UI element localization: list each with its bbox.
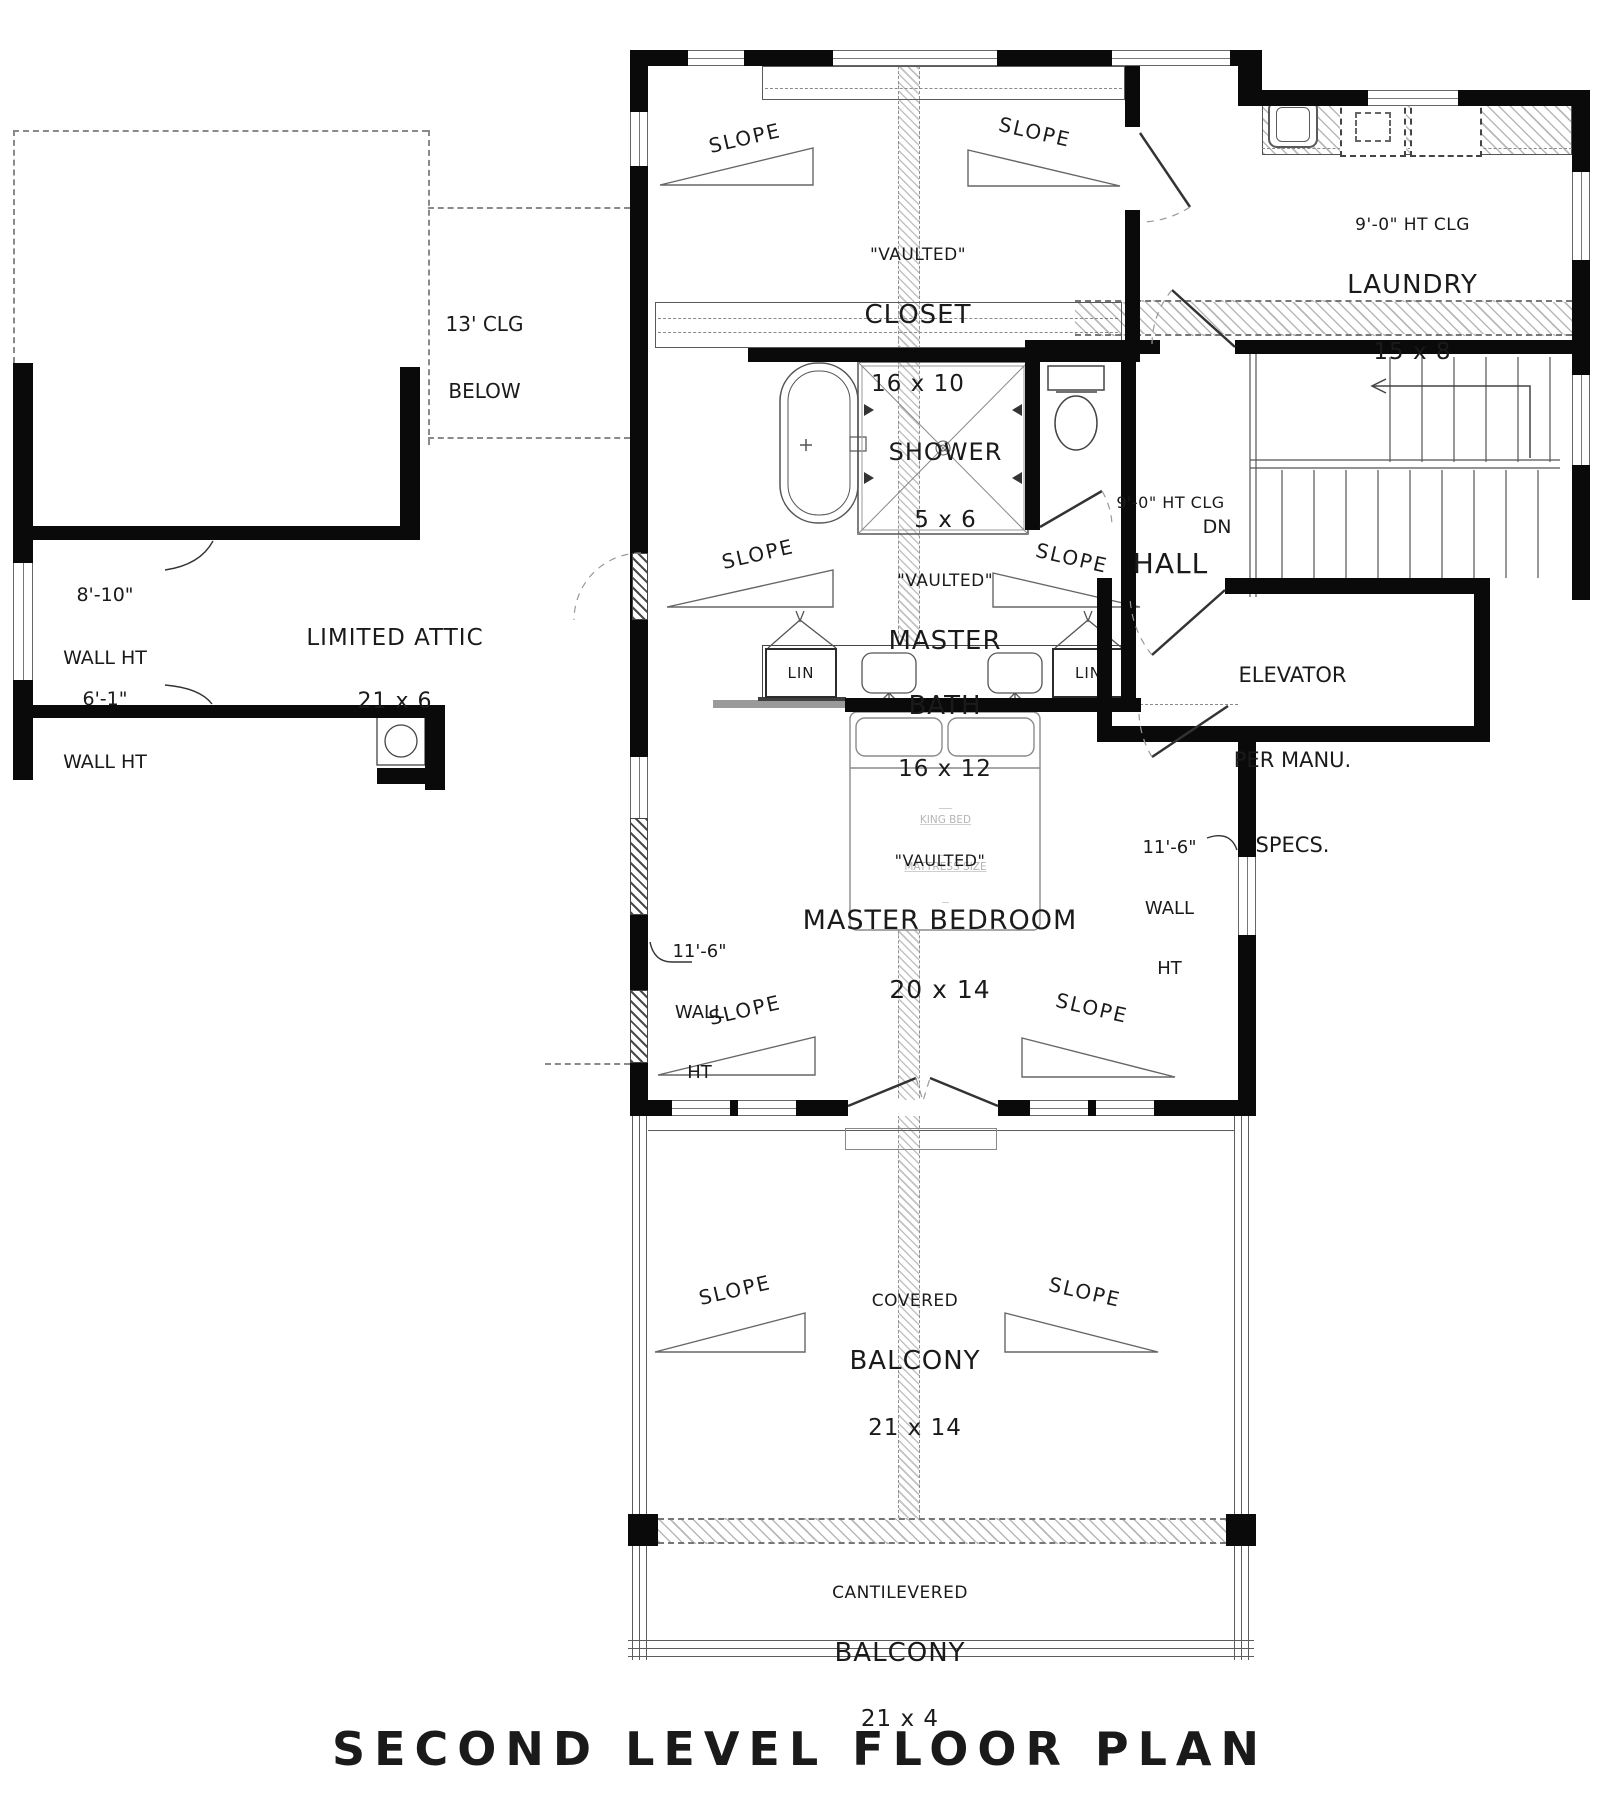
wall-segment (1238, 50, 1262, 106)
window (1096, 1100, 1154, 1116)
balcony-railing (1241, 1116, 1242, 1660)
wall-segment (1025, 362, 1040, 530)
bedroom-name: MASTER BEDROOM (780, 906, 1100, 936)
room-label-limited-attic: LIMITED ATTIC 21 x 6 (285, 590, 505, 751)
room-label-closet: "VAULTED" CLOSET 16 x 10 (818, 210, 1018, 433)
window (630, 112, 648, 166)
balcony-railing (1234, 1116, 1235, 1660)
elevator-line1: ELEVATOR (1150, 661, 1435, 689)
wall-ht-8-10-line1: 8'-10" (35, 585, 175, 606)
closet-dims: 16 x 10 (818, 372, 1018, 398)
closet-name: CLOSET (818, 301, 1018, 330)
toilet (1048, 366, 1104, 450)
linen-cabinet: LIN (765, 648, 837, 698)
wall-segment (1225, 578, 1490, 594)
window (1030, 1100, 1088, 1116)
slope-label: SLOPE (1024, 1267, 1146, 1317)
roof-outline-dashed (545, 1063, 630, 1065)
sliding-door-track (713, 700, 845, 708)
wall-ht-line1: 11'-6" (1122, 838, 1217, 858)
laundry-note: 9'-0" HT CLG (1305, 216, 1520, 235)
balcony-railing (646, 1116, 647, 1660)
clg-below-annotation: 13' CLG BELOW (412, 268, 557, 447)
door-threshold (845, 1128, 997, 1150)
room-label-master-bath: "VAULTED" MASTER BATH 16 x 12 (845, 536, 1045, 818)
room-label-laundry: 9'-0" HT CLG LAUNDRY 15 x 8 (1305, 180, 1520, 401)
wall-ht-6-1-annotation: 6'-1" WALL HT (35, 646, 175, 816)
door-opening (1160, 340, 1235, 354)
covered-balcony-dims: 21 x 14 (810, 1416, 1020, 1442)
washer-drum (1355, 112, 1391, 142)
french-door-opening (848, 1100, 998, 1116)
dryer (1410, 97, 1482, 157)
door-opening (1125, 127, 1140, 210)
window (688, 50, 744, 66)
wall-segment (1572, 90, 1590, 600)
wall-ht-line3: HT (652, 1063, 747, 1083)
attic-name: LIMITED ATTIC (285, 626, 505, 652)
window (1112, 50, 1230, 66)
laundry-sink-basin (1276, 107, 1310, 142)
slope-label: SLOPE (674, 1265, 796, 1315)
window (1572, 375, 1590, 465)
slope-label: SLOPE (684, 113, 806, 163)
bath-dims: 16 x 12 (845, 757, 1045, 783)
linen-cabinet: LIN (1052, 648, 1125, 698)
wall-segment (377, 768, 445, 784)
bedroom-note: "VAULTED" (780, 852, 1100, 870)
balcony-post (628, 1514, 658, 1546)
elevator-line2: PER MANU. (1150, 746, 1435, 774)
slope-label: SLOPE (974, 107, 1096, 157)
laundry-name: LAUNDRY (1305, 271, 1520, 300)
roof-outline-dashed (13, 130, 428, 132)
drawing-title: SECOND LEVEL FLOOR PLAN (0, 1722, 1600, 1776)
linen-label: LIN (787, 664, 814, 682)
balcony-post (1226, 1514, 1256, 1546)
cantilevered-line2: BALCONY (795, 1639, 1005, 1668)
low-wall-hatched (630, 990, 648, 1063)
window (13, 563, 33, 680)
wall-ht-line3: HT (1122, 959, 1217, 979)
floor-plan: LIN LIN (0, 0, 1600, 1811)
shower-dims: 5 x 6 (868, 508, 1023, 534)
wall-ht-line2: WALL (1122, 899, 1217, 919)
closet-note: "VAULTED" (818, 246, 1018, 265)
bath-name2: BATH (845, 692, 1045, 721)
window (630, 757, 648, 818)
window (1368, 90, 1458, 106)
clg-below-line2: BELOW (412, 380, 557, 402)
wall-ht-line1: 11'-6" (652, 942, 747, 962)
window (1572, 172, 1590, 260)
stairs-dn-label: DN (1192, 517, 1242, 538)
bath-note: "VAULTED" (845, 572, 1045, 591)
balcony-railing (639, 1116, 640, 1660)
window (833, 50, 997, 66)
attic-dims: 21 x 6 (285, 690, 505, 715)
room-label-covered-balcony: COVERED BALCONY 21 x 14 (810, 1256, 1020, 1477)
closet-rod-dashed (765, 88, 1122, 89)
low-wall-hatched (630, 818, 648, 915)
balcony-railing (1248, 1116, 1249, 1660)
wall-ht-6-1-line1: 6'-1" (35, 689, 175, 710)
wall-segment (13, 526, 420, 540)
shower-name: SHOWER (868, 439, 1023, 466)
covered-balcony-line2: BALCONY (810, 1347, 1020, 1376)
slope-label: SLOPE (697, 529, 819, 579)
cantilever-beam (658, 1518, 1226, 1544)
covered-balcony-line1: COVERED (810, 1292, 1020, 1311)
balcony-railing (632, 1116, 633, 1660)
wall-ht-6-1-line2: WALL HT (35, 752, 175, 773)
bath-name1: MASTER (845, 627, 1045, 656)
clg-below-line1: 13' CLG (412, 313, 557, 335)
roof-outline-dashed (428, 207, 630, 209)
closet-shelf (762, 66, 1125, 100)
cantilevered-line1: CANTILEVERED (795, 1584, 1005, 1603)
laundry-dims: 15 x 8 (1305, 340, 1520, 366)
wall-segment (1474, 578, 1490, 742)
wall-ht-11-6-right-annotation: 11'-6" WALL HT (1122, 798, 1217, 1020)
roof-outline-dashed (13, 130, 15, 363)
door-leaf-hatched (632, 553, 648, 620)
hall-note: 9'-0" HT CLG (1088, 494, 1253, 512)
